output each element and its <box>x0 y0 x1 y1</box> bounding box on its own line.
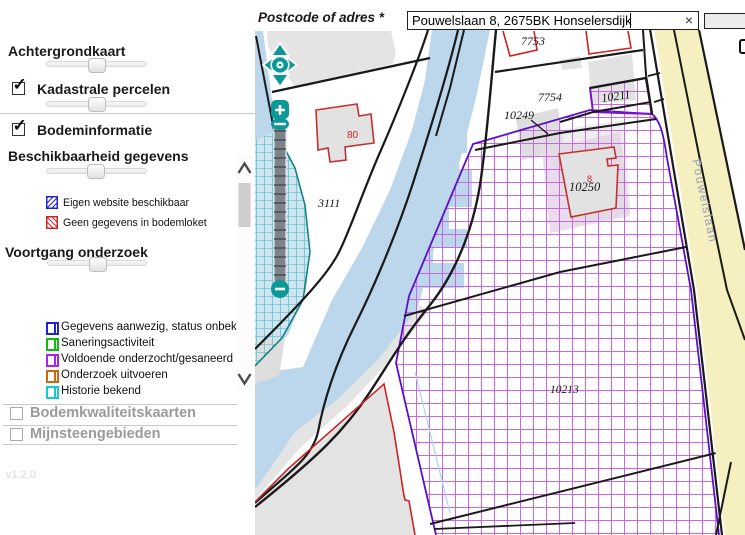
svg-text:7754: 7754 <box>538 90 562 104</box>
svg-text:10213: 10213 <box>550 384 579 396</box>
svg-text:80: 80 <box>347 130 359 141</box>
svg-text:8: 8 <box>587 174 592 184</box>
svg-text:3111: 3111 <box>317 196 340 210</box>
svg-text:10249: 10249 <box>504 108 534 122</box>
svg-text:7753: 7753 <box>521 34 545 48</box>
svg-text:10250: 10250 <box>569 180 601 194</box>
